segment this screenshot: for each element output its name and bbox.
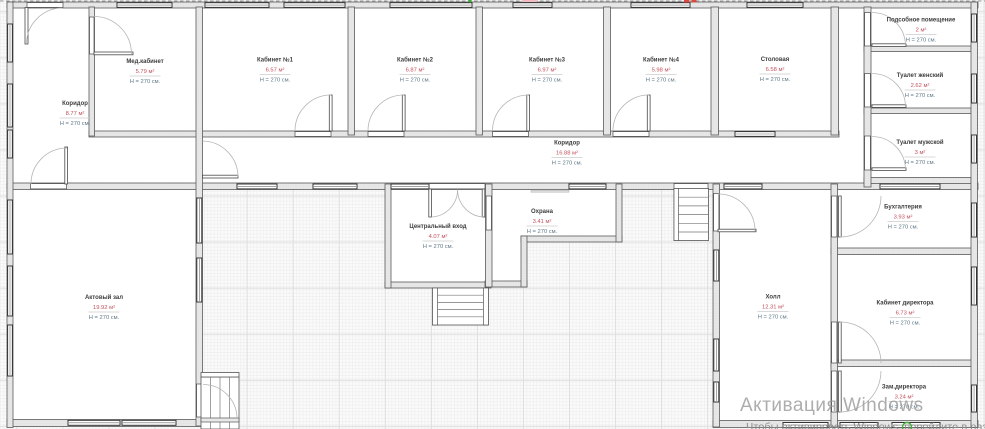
- svg-text:6.97 м²: 6.97 м²: [538, 68, 557, 74]
- svg-text:Актовый зал: Актовый зал: [85, 294, 123, 301]
- svg-text:Зам.директора: Зам.директора: [882, 385, 927, 391]
- svg-text:Мед.кабинет: Мед.кабинет: [126, 58, 163, 65]
- svg-text:Подсобное помещение: Подсобное помещение: [887, 17, 956, 24]
- svg-text:Коридор: Коридор: [62, 101, 88, 107]
- svg-text:H = 270 см.: H = 270 см.: [646, 78, 677, 84]
- svg-text:Охрана: Охрана: [531, 209, 554, 215]
- svg-text:6.58 м²: 6.58 м²: [766, 67, 785, 73]
- svg-text:6.57 м²: 6.57 м²: [266, 68, 285, 74]
- svg-text:Кабинет №2: Кабинет №2: [397, 57, 434, 64]
- svg-text:H = 270 см.: H = 270 см.: [89, 315, 120, 321]
- svg-text:19.92 м²: 19.92 м²: [93, 305, 115, 311]
- svg-text:H = 270 см.: H = 270 см.: [760, 77, 791, 83]
- svg-text:3 м²: 3 м²: [915, 150, 926, 156]
- svg-text:Центральный вход: Центральный вход: [409, 223, 466, 230]
- svg-text:H = 270 см.: H = 270 см.: [60, 121, 91, 127]
- svg-text:H = 270 см.: H = 270 см.: [905, 93, 936, 99]
- svg-text:Кабинет №1: Кабинет №1: [257, 57, 294, 64]
- svg-text:Кабинет №3: Кабинет №3: [529, 57, 566, 64]
- svg-text:H = 270 см.: H = 270 см.: [888, 225, 919, 231]
- svg-text:H = 270 см.: H = 270 см.: [527, 229, 558, 235]
- svg-text:H = 270 см.: H = 270 см.: [905, 160, 936, 166]
- svg-text:Холл: Холл: [765, 295, 780, 301]
- svg-text:12.31 м²: 12.31 м²: [762, 305, 784, 311]
- svg-text:Кабинет №4: Кабинет №4: [643, 57, 680, 64]
- svg-text:Столовая: Столовая: [761, 57, 790, 63]
- svg-text:3.41 м²: 3.41 м²: [533, 219, 552, 225]
- svg-text:Чтобы активировать Windows, пе: Чтобы активировать Windows, перейдите в …: [746, 422, 985, 429]
- svg-text:H = 270 см.: H = 270 см.: [130, 79, 161, 85]
- svg-text:2 м²: 2 м²: [916, 28, 927, 34]
- svg-text:Туалет мужской: Туалет мужской: [896, 139, 943, 146]
- svg-text:3.93 м²: 3.93 м²: [894, 215, 913, 221]
- svg-text:H = 270 см.: H = 270 см.: [906, 38, 937, 44]
- svg-text:Коридор: Коридор: [554, 141, 580, 147]
- svg-text:H = 270 см.: H = 270 см.: [552, 161, 583, 167]
- svg-text:6.73 м²: 6.73 м²: [896, 311, 915, 317]
- svg-text:Туалет женский: Туалет женский: [897, 72, 944, 79]
- svg-text:16.88 м²: 16.88 м²: [556, 151, 578, 157]
- svg-text:H = 270 см.: H = 270 см.: [423, 244, 454, 250]
- svg-text:6.87 м²: 6.87 м²: [406, 68, 425, 74]
- svg-text:Кабинет директора: Кабинет директора: [877, 300, 935, 307]
- svg-text:H = 270 см.: H = 270 см.: [890, 321, 921, 327]
- svg-text:H = 270 см.: H = 270 см.: [532, 78, 563, 84]
- svg-text:H = 270 см.: H = 270 см.: [758, 315, 789, 321]
- svg-text:5.79 м²: 5.79 м²: [136, 69, 155, 75]
- svg-text:8.77 м²: 8.77 м²: [66, 111, 85, 117]
- svg-text:Активация Windows: Активация Windows: [740, 395, 924, 416]
- svg-text:H = 270 см.: H = 270 см.: [260, 78, 291, 84]
- svg-text:2.62 м²: 2.62 м²: [911, 83, 930, 89]
- svg-text:Бухгалтерия: Бухгалтерия: [884, 205, 922, 211]
- svg-text:5.98 м²: 5.98 м²: [652, 68, 671, 74]
- svg-text:4.07 м²: 4.07 м²: [429, 234, 448, 240]
- svg-text:H = 270 см.: H = 270 см.: [400, 78, 431, 84]
